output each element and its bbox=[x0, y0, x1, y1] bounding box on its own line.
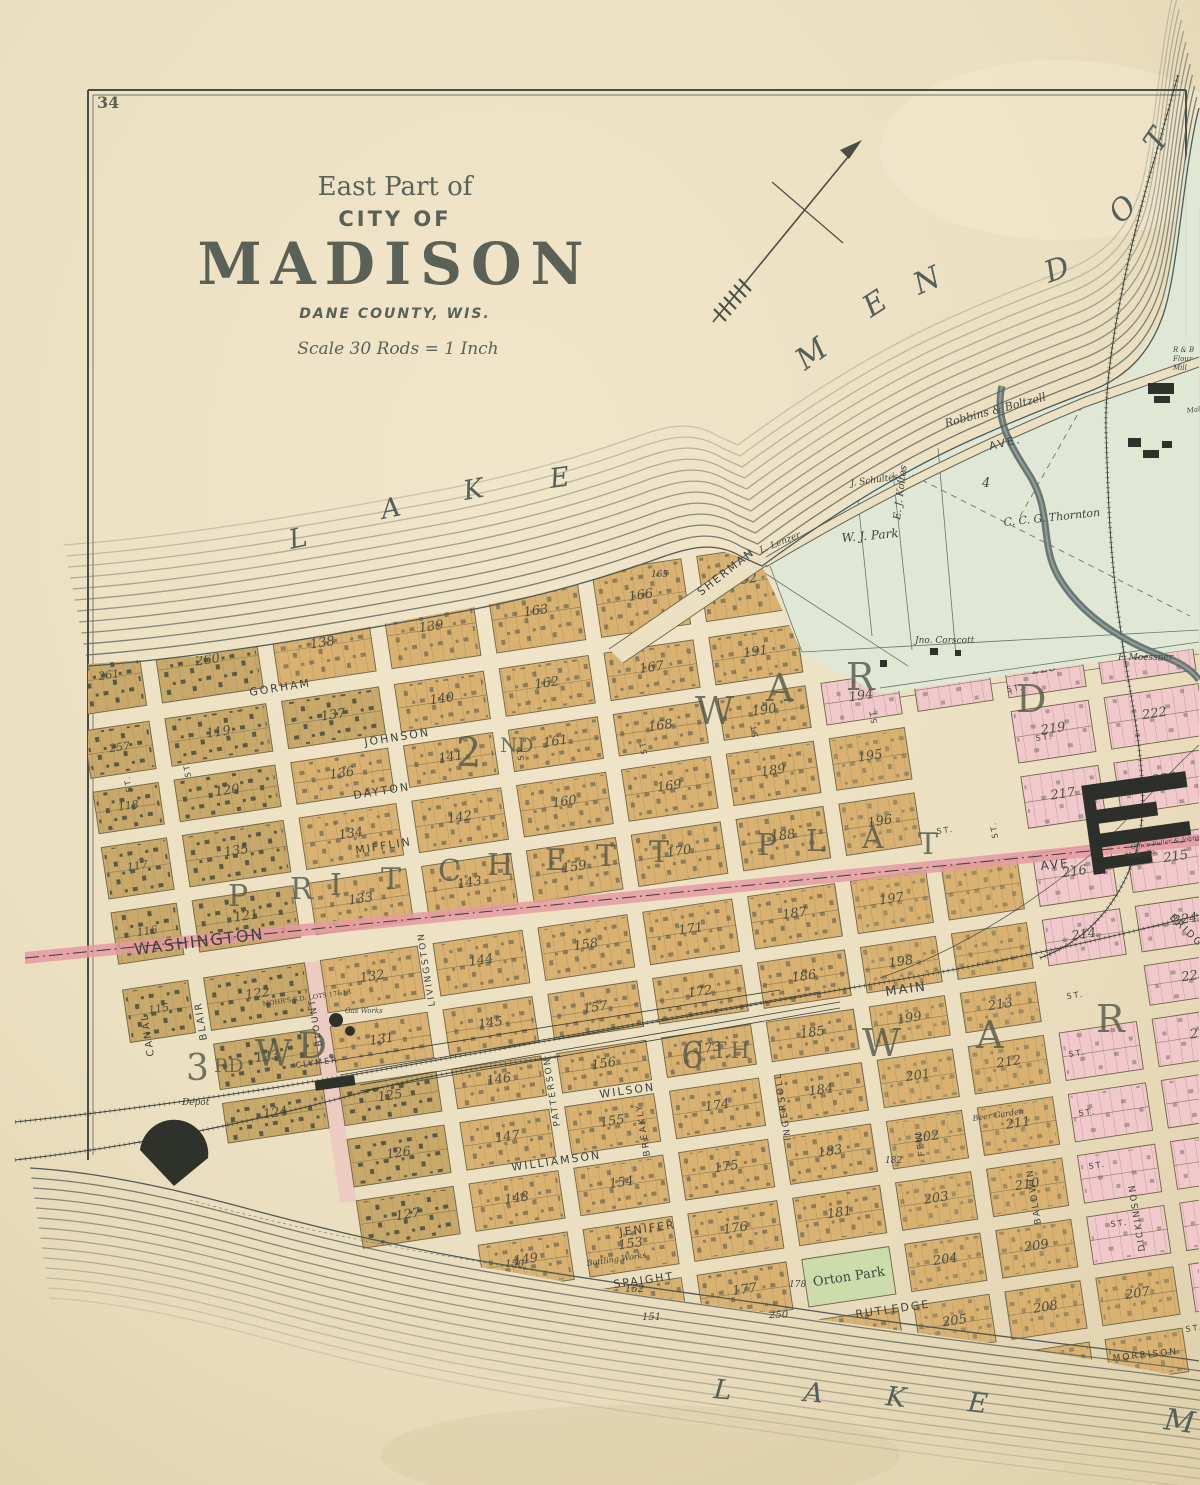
owner-label: 150 bbox=[505, 1259, 525, 1270]
owner-label: Mill bbox=[1172, 364, 1187, 372]
ward-plat-letter: 6 bbox=[681, 1036, 704, 1077]
ward-plat-letter: P bbox=[228, 879, 248, 914]
ward-plat-letter: W bbox=[695, 689, 734, 733]
ward-plat-letter: H bbox=[487, 848, 513, 883]
ward-plat-letter: R bbox=[846, 655, 876, 699]
ward-plat-letter: A bbox=[975, 1013, 1004, 1057]
ward-plat-letter: R bbox=[1096, 997, 1126, 1041]
title-county: DANE COUNTY, WIS. bbox=[299, 306, 491, 322]
madison-plat-map: 34 East Part of CITY OF MADISON DANE COU… bbox=[0, 0, 1200, 1485]
ward-plat-letter: RD bbox=[214, 1055, 244, 1077]
lake-name-letter: M bbox=[1161, 1402, 1199, 1441]
ward-plat-letter: E bbox=[545, 843, 567, 878]
title-city: MADISON bbox=[197, 230, 592, 298]
ward-plat-letter: T bbox=[381, 862, 401, 897]
page-number: 34 bbox=[97, 93, 119, 112]
title-city-prefix: CITY OF bbox=[338, 207, 451, 231]
owner-label: R & B bbox=[1172, 346, 1194, 354]
city-block: 117 bbox=[101, 838, 174, 899]
ward-plat-letter: P bbox=[757, 828, 777, 863]
city-block: 257 bbox=[84, 721, 156, 778]
lake-name-letter: E bbox=[547, 461, 573, 495]
owner-label: 151 bbox=[642, 1312, 661, 1323]
ward-plat-letter: T bbox=[649, 835, 669, 870]
owner-label: 182 bbox=[885, 1156, 902, 1166]
city-block: 115 bbox=[123, 980, 196, 1042]
ward-plat-letter: C bbox=[438, 854, 461, 889]
owner-label: 4 bbox=[981, 476, 990, 491]
ward-plat-letter: A bbox=[765, 666, 794, 710]
city-block: 195 bbox=[829, 728, 912, 791]
title-scale: Scale 30 Rods = 1 Inch bbox=[297, 339, 498, 359]
street-label: ST. bbox=[1185, 1323, 1200, 1334]
ward-plat-letter: 2 bbox=[456, 730, 481, 776]
ward-plat-letter: 3 bbox=[186, 1048, 209, 1089]
block-number: 225 bbox=[1179, 967, 1200, 986]
owner-label: 165 bbox=[651, 570, 668, 580]
ward-plat-letter: A bbox=[861, 821, 884, 856]
owner-label: Gas Works bbox=[345, 1007, 383, 1015]
owner-label: F. Moessner bbox=[1117, 653, 1174, 663]
ward-plat-letter: I bbox=[330, 868, 342, 903]
owner-label: 178 bbox=[789, 1280, 806, 1290]
ward-plat-letter: W bbox=[255, 1034, 292, 1075]
lake-name-letter: E bbox=[965, 1387, 990, 1420]
owner-label: Flour bbox=[1172, 355, 1193, 363]
ward-plat-letter: L bbox=[806, 824, 826, 859]
lake-name-letter: K bbox=[883, 1381, 909, 1414]
ward-plat-letter: R bbox=[290, 872, 314, 907]
atlas-sheet: 34 East Part of CITY OF MADISON DANE COU… bbox=[0, 0, 1200, 1485]
block-number: 226 bbox=[1188, 1024, 1200, 1043]
lake-name-letter: L bbox=[711, 1374, 734, 1407]
gas-works-tank bbox=[329, 1013, 343, 1027]
title-region: East Part of bbox=[318, 172, 475, 202]
owner-label: 250 bbox=[768, 1310, 789, 1321]
owner-label: Jno. Corscott bbox=[913, 636, 975, 646]
ward-plat-letter: T.H bbox=[712, 1039, 750, 1064]
gas-works-tank bbox=[345, 1026, 355, 1036]
owner-label: 152 bbox=[625, 1284, 644, 1295]
owner-label: Depot bbox=[181, 1098, 210, 1108]
ward-plat-letter: T bbox=[596, 839, 616, 874]
ward-plat-letter: W bbox=[862, 1021, 901, 1065]
ward-plat-letter: T bbox=[918, 827, 938, 862]
